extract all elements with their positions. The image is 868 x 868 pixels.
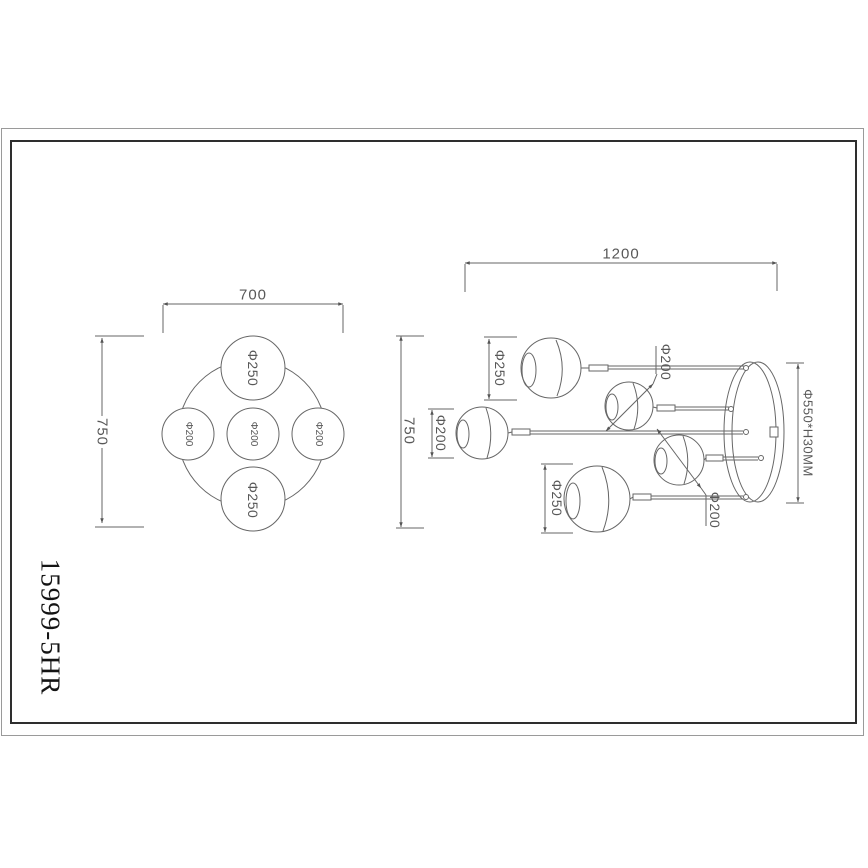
top-view [95, 304, 344, 531]
dim-label-750-top-view: 750 [95, 416, 110, 448]
dim-label-globe-top: Φ250 [493, 350, 507, 387]
dim-label-globe-far-left: Φ200 [434, 415, 448, 452]
top-view-dim-width [163, 304, 343, 333]
leader-label-globe-upper: Φ200 [659, 344, 673, 381]
dim-label-globe-bottom: Φ250 [550, 480, 564, 517]
dim-label-750-side-view: 750 [402, 417, 417, 445]
rod-lower-middle [704, 455, 758, 461]
globe-far-left [456, 407, 508, 459]
dim-label-canopy: Φ550*H30MM [802, 389, 815, 477]
side-view [396, 263, 804, 533]
top-view-label-globe-right: Φ200 [313, 422, 323, 447]
dim-label-700: 700 [239, 288, 267, 303]
top-view-label-globe-left: Φ200 [183, 422, 193, 447]
canopy-notch [770, 427, 778, 437]
dim-label-1200: 1200 [602, 247, 639, 262]
canopy-attachment-dots [729, 366, 764, 500]
top-view-label-globe-bottom: Φ250 [246, 482, 260, 519]
top-view-label-globe-top: Φ250 [246, 350, 260, 387]
side-view-dim-width [465, 263, 777, 292]
rod-bottom [630, 494, 743, 500]
globe-lower-middle [654, 435, 704, 485]
globe-upper-middle [605, 382, 653, 430]
canopy-plate [724, 362, 784, 502]
part-number: 15999-5HR [35, 559, 66, 696]
leader-label-globe-lower: Φ200 [708, 492, 722, 529]
top-view-label-globe-center: Φ200 [248, 422, 258, 447]
globe-top [521, 338, 581, 398]
rod-upper-middle [653, 405, 729, 411]
globe-bottom [564, 466, 630, 532]
drawing-sheet: 700 750 Φ250 Φ250 Φ200 Φ200 Φ200 1200 75… [0, 0, 868, 868]
